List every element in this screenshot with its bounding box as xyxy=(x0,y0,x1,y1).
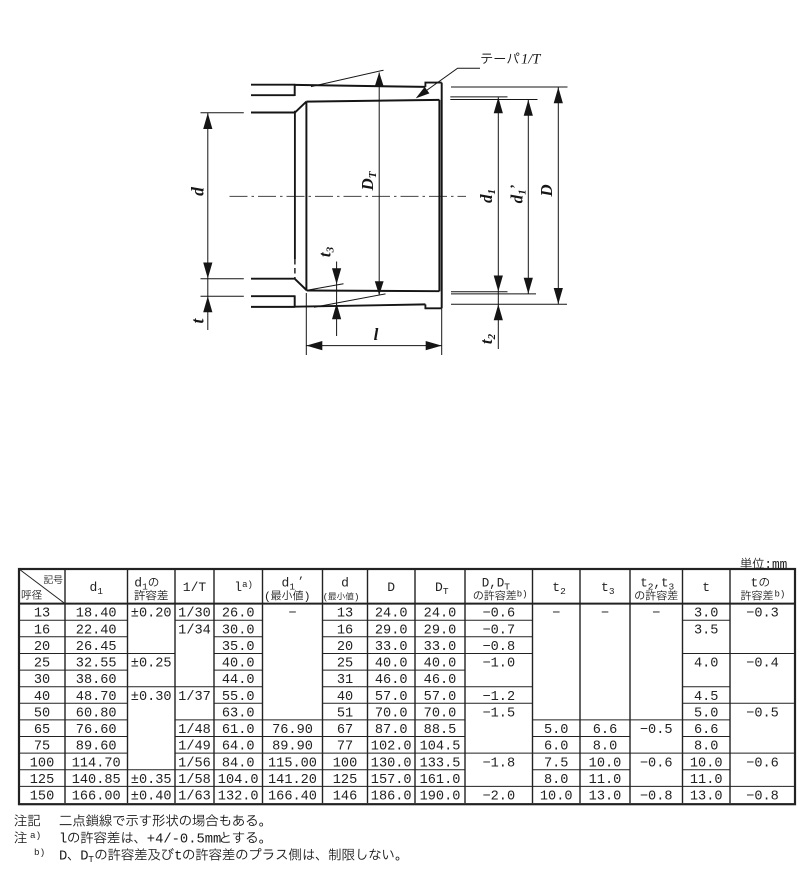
svg-text:190.0: 190.0 xyxy=(420,790,461,805)
svg-text:55.0: 55.0 xyxy=(222,690,255,705)
svg-text:8.0: 8.0 xyxy=(544,773,568,788)
svg-text:−0.5: −0.5 xyxy=(746,706,779,721)
svg-text:115.00: 115.00 xyxy=(268,756,317,771)
svg-text:26.45: 26.45 xyxy=(76,640,117,655)
svg-text:157.0: 157.0 xyxy=(371,773,412,788)
svg-text:d: d xyxy=(188,187,208,196)
svg-text:−0.6: −0.6 xyxy=(640,756,673,771)
svg-text:−0.4: −0.4 xyxy=(746,657,779,672)
svg-text:l: l xyxy=(374,325,379,344)
svg-text:DT: DT xyxy=(358,170,379,191)
svg-text:166.40: 166.40 xyxy=(268,790,317,805)
svg-text:8.0: 8.0 xyxy=(593,740,617,755)
svg-text:166.00: 166.00 xyxy=(72,790,121,805)
svg-text:46.0: 46.0 xyxy=(375,673,408,688)
svg-text:40.0: 40.0 xyxy=(222,657,255,672)
svg-text:104.0: 104.0 xyxy=(218,773,259,788)
svg-text:76.90: 76.90 xyxy=(272,723,313,738)
svg-text:70.0: 70.0 xyxy=(375,706,408,721)
svg-text:t3: t3 xyxy=(316,246,337,257)
svg-text:−1.0: −1.0 xyxy=(482,657,515,672)
svg-text:70.0: 70.0 xyxy=(424,706,457,721)
svg-text:−0.6: −0.6 xyxy=(482,607,515,622)
svg-text:130.0: 130.0 xyxy=(371,756,412,771)
svg-text:−: − xyxy=(652,607,660,622)
svg-text:−0.6: −0.6 xyxy=(746,756,779,771)
svg-text:1/T: 1/T xyxy=(183,580,207,595)
svg-text:57.0: 57.0 xyxy=(424,690,457,705)
svg-text::mm: :mm xyxy=(764,557,787,572)
svg-text:b): b) xyxy=(517,590,528,600)
svg-text:24.0: 24.0 xyxy=(424,607,457,622)
svg-text:±0.25: ±0.25 xyxy=(131,657,172,672)
svg-text:d1’: d1’ xyxy=(282,576,305,593)
svg-text:−0.3: −0.3 xyxy=(746,607,779,622)
svg-text:150: 150 xyxy=(30,790,54,805)
svg-text:61.0: 61.0 xyxy=(222,723,255,738)
svg-text:−: − xyxy=(288,607,296,622)
svg-text:−0.8: −0.8 xyxy=(640,790,673,805)
svg-text:6.6: 6.6 xyxy=(694,723,718,738)
svg-text:t2,t3: t2,t3 xyxy=(640,577,674,593)
svg-text:11.0: 11.0 xyxy=(690,773,723,788)
svg-text:−0.7: −0.7 xyxy=(482,623,515,638)
svg-text:b): b) xyxy=(34,847,45,858)
svg-text:−0.8: −0.8 xyxy=(746,790,779,805)
svg-text:146: 146 xyxy=(333,790,357,805)
svg-text:a): a) xyxy=(30,830,41,841)
svg-text:d1: d1 xyxy=(134,576,148,593)
svg-text:65: 65 xyxy=(34,723,50,738)
svg-text:+4/-0.5mm: +4/-0.5mm xyxy=(147,832,222,848)
svg-text:1/T: 1/T xyxy=(521,52,541,68)
svg-text:102.0: 102.0 xyxy=(371,740,412,755)
svg-text:): ) xyxy=(354,593,359,603)
svg-text:64.0: 64.0 xyxy=(222,740,255,755)
svg-text:t2: t2 xyxy=(552,580,566,597)
svg-text:20: 20 xyxy=(34,640,50,655)
svg-text:35.0: 35.0 xyxy=(222,640,255,655)
svg-text:40: 40 xyxy=(337,690,353,705)
svg-text:50: 50 xyxy=(34,706,50,721)
svg-text:30.0: 30.0 xyxy=(222,623,255,638)
svg-text:114.70: 114.70 xyxy=(72,756,121,771)
svg-text:32.55: 32.55 xyxy=(76,657,117,672)
svg-text:38.60: 38.60 xyxy=(76,673,117,688)
svg-text:89.60: 89.60 xyxy=(76,740,117,755)
svg-text:6.0: 6.0 xyxy=(544,740,568,755)
svg-text:161.0: 161.0 xyxy=(420,773,461,788)
svg-text:D: D xyxy=(59,850,67,865)
svg-text:D: D xyxy=(537,184,556,197)
svg-text:−1.2: −1.2 xyxy=(482,690,515,705)
svg-text:d1: d1 xyxy=(89,580,103,597)
svg-text:t3: t3 xyxy=(601,580,615,597)
svg-text:133.5: 133.5 xyxy=(420,756,461,771)
svg-text:d1: d1 xyxy=(477,189,498,203)
svg-text:DT: DT xyxy=(435,580,449,597)
svg-text:D,DT: D,DT xyxy=(482,577,511,593)
svg-text:100: 100 xyxy=(333,756,357,771)
svg-text:±0.35: ±0.35 xyxy=(131,773,172,788)
svg-text:13.0: 13.0 xyxy=(589,790,622,805)
svg-text:4.0: 4.0 xyxy=(694,657,718,672)
svg-text:20: 20 xyxy=(337,640,353,655)
svg-text:11.0: 11.0 xyxy=(589,773,622,788)
svg-text:5.0: 5.0 xyxy=(694,706,718,721)
svg-text:t2: t2 xyxy=(477,333,498,344)
svg-text:89.90: 89.90 xyxy=(272,740,313,755)
svg-text:40: 40 xyxy=(34,690,50,705)
svg-text:b): b) xyxy=(775,590,786,600)
svg-text:1/63: 1/63 xyxy=(178,790,211,805)
svg-text:25: 25 xyxy=(34,657,50,672)
svg-text:13: 13 xyxy=(34,607,50,622)
svg-text:186.0: 186.0 xyxy=(371,790,412,805)
svg-text:−0.5: −0.5 xyxy=(640,723,673,738)
svg-text:3.5: 3.5 xyxy=(694,623,718,638)
svg-text:−2.0: −2.0 xyxy=(482,790,515,805)
svg-text:6.6: 6.6 xyxy=(593,723,617,738)
svg-text:la): la) xyxy=(234,580,253,595)
svg-text:±0.40: ±0.40 xyxy=(131,790,172,805)
svg-text:−: − xyxy=(601,607,609,622)
svg-text:t: t xyxy=(751,576,759,591)
svg-text:d1’: d1’ xyxy=(508,184,529,203)
svg-text:7.5: 7.5 xyxy=(544,756,568,771)
svg-text:48.70: 48.70 xyxy=(76,690,117,705)
svg-text:51: 51 xyxy=(337,706,353,721)
svg-text:−1.5: −1.5 xyxy=(482,706,515,721)
svg-text:125: 125 xyxy=(30,773,54,788)
svg-text:l: l xyxy=(59,832,67,848)
svg-text:3.0: 3.0 xyxy=(694,607,718,622)
svg-text:75: 75 xyxy=(34,740,50,755)
svg-text:67: 67 xyxy=(337,723,353,738)
svg-text:T: T xyxy=(88,854,94,865)
svg-text:88.5: 88.5 xyxy=(424,723,457,738)
svg-text:46.0: 46.0 xyxy=(424,673,457,688)
svg-text:(: ( xyxy=(323,593,328,603)
svg-text:140.85: 140.85 xyxy=(72,773,121,788)
svg-text:t: t xyxy=(174,850,182,865)
svg-text:44.0: 44.0 xyxy=(222,673,255,688)
svg-text:141.20: 141.20 xyxy=(268,773,317,788)
svg-text:10.0: 10.0 xyxy=(589,756,622,771)
svg-text:10.0: 10.0 xyxy=(690,756,723,771)
svg-text:): ) xyxy=(304,592,311,604)
svg-text:13: 13 xyxy=(337,607,353,622)
svg-text:60.80: 60.80 xyxy=(76,706,117,721)
svg-text:63.0: 63.0 xyxy=(222,706,255,721)
svg-text:40.0: 40.0 xyxy=(375,657,408,672)
svg-text:4.5: 4.5 xyxy=(694,690,718,705)
svg-text:1/30: 1/30 xyxy=(178,607,211,622)
svg-text:D: D xyxy=(387,580,395,595)
svg-text:±0.30: ±0.30 xyxy=(131,690,172,705)
svg-text:−1.8: −1.8 xyxy=(482,756,515,771)
svg-text:84.0: 84.0 xyxy=(222,756,255,771)
svg-text:26.0: 26.0 xyxy=(222,607,255,622)
svg-text:22.40: 22.40 xyxy=(76,623,117,638)
svg-text:29.0: 29.0 xyxy=(375,623,408,638)
svg-text:24.0: 24.0 xyxy=(375,607,408,622)
svg-text:31: 31 xyxy=(337,673,353,688)
svg-text:40.0: 40.0 xyxy=(424,657,457,672)
svg-text:57.0: 57.0 xyxy=(375,690,408,705)
svg-text:77: 77 xyxy=(337,740,353,755)
svg-text:t: t xyxy=(188,317,208,323)
svg-text:16: 16 xyxy=(34,623,50,638)
svg-text:1/37: 1/37 xyxy=(178,690,211,705)
svg-text:d: d xyxy=(341,576,349,591)
svg-text:87.0: 87.0 xyxy=(375,723,408,738)
svg-text:104.5: 104.5 xyxy=(420,740,461,755)
svg-text:25: 25 xyxy=(337,657,353,672)
svg-text:5.0: 5.0 xyxy=(544,723,568,738)
svg-text:132.0: 132.0 xyxy=(218,790,259,805)
svg-text:(: ( xyxy=(264,592,271,604)
svg-text:29.0: 29.0 xyxy=(424,623,457,638)
svg-text:1/56: 1/56 xyxy=(178,756,211,771)
svg-text:33.0: 33.0 xyxy=(424,640,457,655)
svg-text:13.0: 13.0 xyxy=(690,790,723,805)
svg-text:30: 30 xyxy=(34,673,50,688)
svg-text:1/48: 1/48 xyxy=(178,723,211,738)
svg-text:18.40: 18.40 xyxy=(76,607,117,622)
svg-text:16: 16 xyxy=(337,623,353,638)
svg-text:125: 125 xyxy=(333,773,357,788)
svg-text:1/58: 1/58 xyxy=(178,773,211,788)
svg-text:−0.8: −0.8 xyxy=(482,640,515,655)
svg-text:33.0: 33.0 xyxy=(375,640,408,655)
svg-text:76.60: 76.60 xyxy=(76,723,117,738)
svg-text:1/49: 1/49 xyxy=(178,740,211,755)
svg-text:10.0: 10.0 xyxy=(540,790,573,805)
svg-text:±0.20: ±0.20 xyxy=(131,607,172,622)
svg-text:t: t xyxy=(702,580,710,595)
svg-text:100: 100 xyxy=(30,756,54,771)
svg-text:8.0: 8.0 xyxy=(694,740,718,755)
svg-text:1/34: 1/34 xyxy=(178,623,211,638)
svg-text:−: − xyxy=(552,607,560,622)
